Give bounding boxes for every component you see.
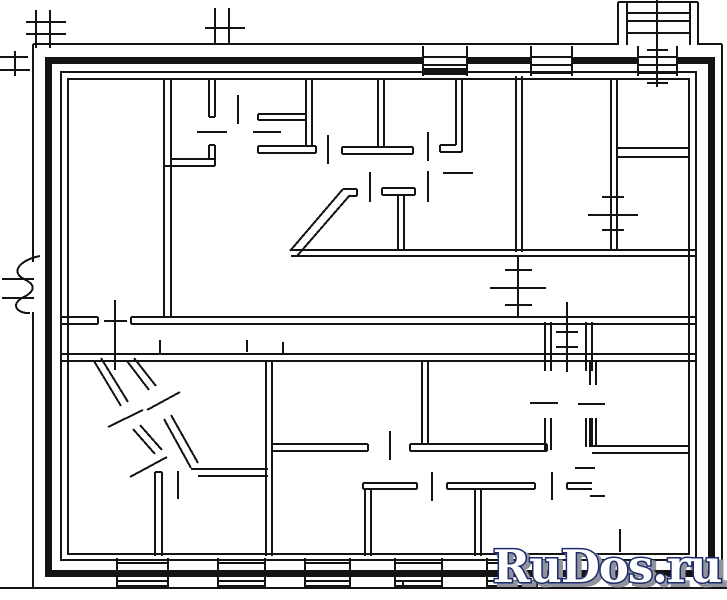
floor-plan-page: RuDos.ru RuDos.ru <box>0 0 727 600</box>
watermark-text: RuDos.ru <box>493 540 722 593</box>
floor-plan-drawing <box>0 0 727 600</box>
watermark-logo: RuDos.ru RuDos.ru <box>487 538 727 600</box>
